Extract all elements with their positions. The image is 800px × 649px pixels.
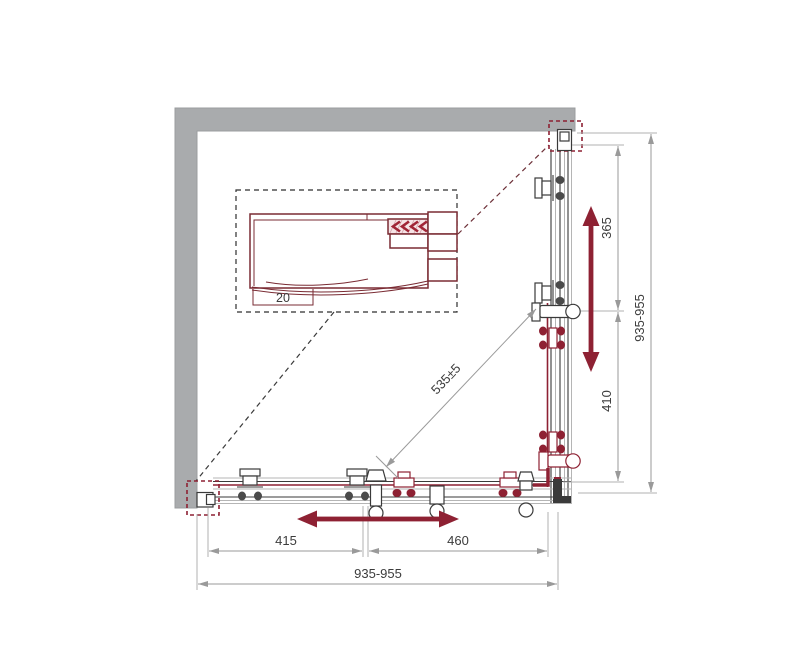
technical-drawing-canvas: 20 365 410 935-955 415 460 935-955 535±5 (0, 0, 800, 649)
dim-label-410: 410 (599, 390, 614, 412)
drawing-background (0, 0, 800, 649)
dim-label-415: 415 (275, 533, 297, 548)
dim-label-365: 365 (599, 217, 614, 239)
dim-label-right-total: 935-955 (632, 294, 647, 342)
dim-label-460: 460 (447, 533, 469, 548)
dim-label-bottom-total: 935-955 (354, 566, 402, 581)
door-handle-red (539, 452, 580, 470)
dim-label-20: 20 (276, 291, 290, 305)
profile-section (250, 212, 457, 295)
